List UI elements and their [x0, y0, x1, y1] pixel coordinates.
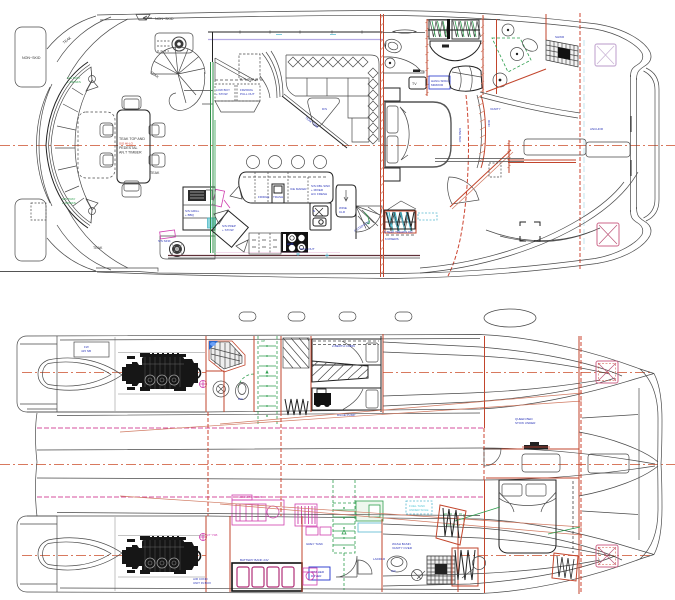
svg-text:+ STOW: + STOW [222, 228, 234, 232]
svg-text:+ STOW: + STOW [216, 92, 228, 96]
svg-text:UNDER SOLE: UNDER SOLE [409, 508, 429, 512]
svg-text:+ DRINKS: + DRINKS [62, 201, 76, 205]
svg-text:GREY TANK: GREY TANK [306, 542, 323, 546]
svg-text:PULL OUT: PULL OUT [300, 247, 315, 251]
svg-text:BATTERY BANK 24V: BATTERY BANK 24V [240, 558, 269, 562]
svg-text:TEAK TOP AND: TEAK TOP AND [119, 137, 145, 141]
svg-text:AN.T TIMBER: AN.T TIMBER [119, 151, 142, 155]
svg-text:KING BED: KING BED [458, 128, 462, 143]
svg-text:NON−SKID: NON−SKID [155, 17, 174, 21]
svg-text:6 TEAK TREADS DN: 6 TEAK TREADS DN [384, 230, 412, 234]
svg-text:LADDER: LADDER [373, 557, 386, 561]
svg-text:PEDESTAL: PEDESTAL [119, 146, 138, 150]
svg-text:STOW UNDER: STOW UNDER [515, 421, 536, 425]
svg-text:TEAK: TEAK [93, 246, 103, 250]
svg-text:TV: TV [412, 82, 417, 86]
svg-text:S: S [313, 209, 315, 213]
svg-text:6 RISERS: 6 RISERS [385, 237, 399, 241]
svg-text:H/C FRESH: H/C FRESH [311, 192, 327, 196]
svg-text:NON−SKID: NON−SKID [22, 56, 41, 60]
svg-text:WC: WC [391, 569, 397, 573]
svg-text:WC: WC [238, 397, 244, 401]
svg-text:TRASH: TRASH [273, 195, 283, 199]
svg-text:CLR: CLR [339, 210, 346, 214]
svg-text:FRIDGE: FRIDGE [258, 195, 269, 199]
svg-text:SHWR: SHWR [555, 35, 565, 39]
svg-text:HOB: HOB [287, 242, 294, 246]
svg-text:415 NB: 415 NB [81, 349, 91, 353]
svg-text:MIRROR: MIRROR [431, 83, 444, 87]
svg-text:TEAK: TEAK [150, 171, 160, 175]
svg-text:2-BERTH CABIN: 2-BERTH CABIN [332, 344, 355, 348]
svg-text:VANITY OVER: VANITY OVER [392, 546, 413, 550]
svg-text:D/S: D/S [322, 107, 327, 111]
svg-text:ROD: ROD [487, 120, 491, 128]
svg-text:PULL OUT: PULL OUT [240, 92, 255, 96]
svg-text:UP: UP [261, 339, 265, 343]
svg-text:ANCHOR: ANCHOR [590, 127, 604, 131]
svg-text:S/T YSB: S/T YSB [206, 533, 217, 537]
svg-text:+ DRINKS: + DRINKS [67, 80, 81, 84]
svg-text:UNIT IN BOX: UNIT IN BOX [193, 581, 211, 585]
svg-text:+ BBQ: + BBQ [185, 213, 195, 217]
svg-text:VANITY: VANITY [490, 107, 501, 111]
svg-text:ICE MAKER: ICE MAKER [290, 187, 307, 191]
svg-text:S/O HI-LO: S/O HI-LO [119, 142, 134, 146]
svg-text:S/S SINK: S/S SINK [158, 239, 171, 243]
